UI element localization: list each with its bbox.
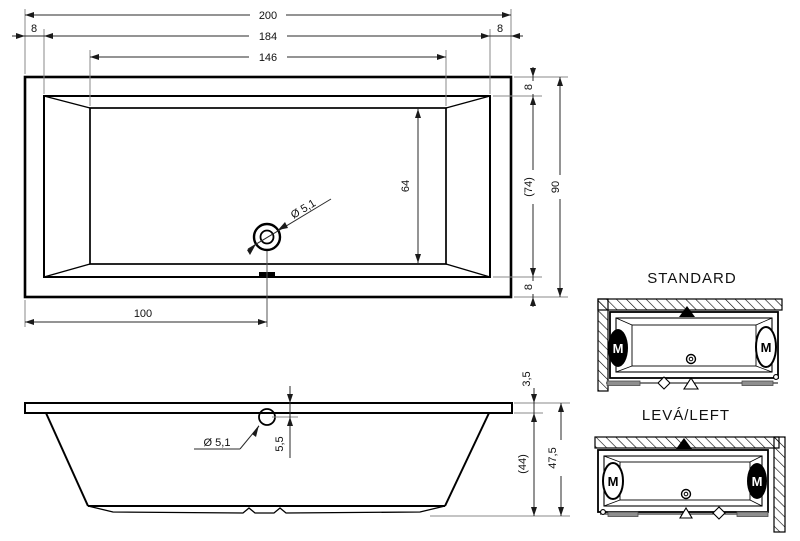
- mini-tub-floor: [632, 325, 756, 366]
- rim-slab-outline: [25, 403, 512, 413]
- diamond-marker-icon: [713, 507, 725, 519]
- motor-right-label: M: [752, 474, 763, 489]
- top-view-horizontal-dimensions: 200 8 184 8 146: [12, 9, 523, 106]
- front-drain-drop-dimension: 5,5: [272, 386, 298, 458]
- motor-left-label: M: [608, 474, 619, 489]
- front-drain-diameter-label: Ø 5,1: [204, 437, 231, 449]
- foot-bar-left: [608, 512, 638, 517]
- mini-tub-outer: [610, 312, 778, 378]
- mini-drain-inner: [689, 357, 693, 361]
- mini-drain-outer: [682, 490, 691, 499]
- dim-inner-width-label: 184: [259, 31, 277, 43]
- drawing-sheet: Ø 5,1 200 8 184 8: [0, 0, 800, 541]
- mini-tub-corner-slopes: [604, 456, 762, 506]
- standard-title: STANDARD: [647, 270, 736, 287]
- triangle-marker-icon: [684, 378, 698, 389]
- front-view: Ø 5,1 5,5 3,5 (44) 47,5: [25, 371, 570, 516]
- motor-right-label: M: [761, 340, 772, 355]
- dim-overall-width-label: 200: [259, 10, 277, 22]
- triangle-marker-icon: [680, 508, 692, 518]
- dim-inner-depth-label: (74): [523, 177, 535, 197]
- dim-total-height-label: 47,5: [547, 447, 559, 468]
- dim-rim-right-label: 8: [497, 23, 503, 35]
- dim-drain-offset-label: 100: [134, 308, 152, 320]
- mini-tub-floor: [620, 462, 750, 500]
- dim-drain-drop-label: 5,5: [274, 436, 286, 451]
- dim-overall-depth-label: 90: [550, 181, 562, 193]
- dim-floor-depth-label: 64: [400, 180, 412, 192]
- dim-rim-top-label: 8: [523, 84, 535, 90]
- variant-left: LEVÁ/LEFT M M: [595, 407, 785, 532]
- front-drain-diameter-callout: Ø 5,1: [194, 425, 259, 449]
- right-slope-line: [445, 413, 489, 506]
- motor-left-label: M: [613, 341, 624, 356]
- tub-floor-outline: [90, 108, 446, 264]
- top-view-vertical-dimensions: 8 (74) 8 90 64: [400, 67, 568, 307]
- left-title: LEVÁ/LEFT: [642, 407, 730, 424]
- dim-rim-bottom-label: 8: [523, 284, 535, 290]
- left-slope-line: [46, 413, 88, 506]
- variant-standard: STANDARD M M: [598, 270, 782, 391]
- skirt-outline: [88, 506, 445, 513]
- drain-diameter-label: Ø 5,1: [289, 197, 318, 221]
- bathtub-technical-drawing: Ø 5,1 200 8 184 8: [0, 0, 800, 541]
- dim-floor-width-label: 146: [259, 52, 277, 64]
- dim-rim-thickness-label: 3,5: [521, 371, 533, 386]
- mini-tub-rim: [616, 318, 772, 372]
- mini-tub-corner-slopes: [616, 318, 772, 372]
- foot-bar-right: [737, 512, 768, 517]
- wall-right-hatch: [774, 437, 785, 532]
- dim-shell-height-label: (44): [517, 454, 529, 474]
- mini-tub-rim: [604, 456, 762, 506]
- mini-drain-outer: [687, 355, 696, 364]
- corner-dot-icon: [601, 510, 606, 515]
- wall-left-hatch: [598, 299, 608, 391]
- corner-dot-icon: [774, 375, 779, 380]
- top-view: Ø 5,1 200 8 184 8: [12, 9, 568, 327]
- drain-offset-dimension: 100: [25, 300, 267, 327]
- foot-bar-right: [742, 381, 773, 386]
- mini-drain-inner: [684, 492, 688, 496]
- wall-top-hatch: [598, 299, 782, 310]
- foot-bar-left: [607, 381, 640, 386]
- dim-rim-left-label: 8: [31, 23, 37, 35]
